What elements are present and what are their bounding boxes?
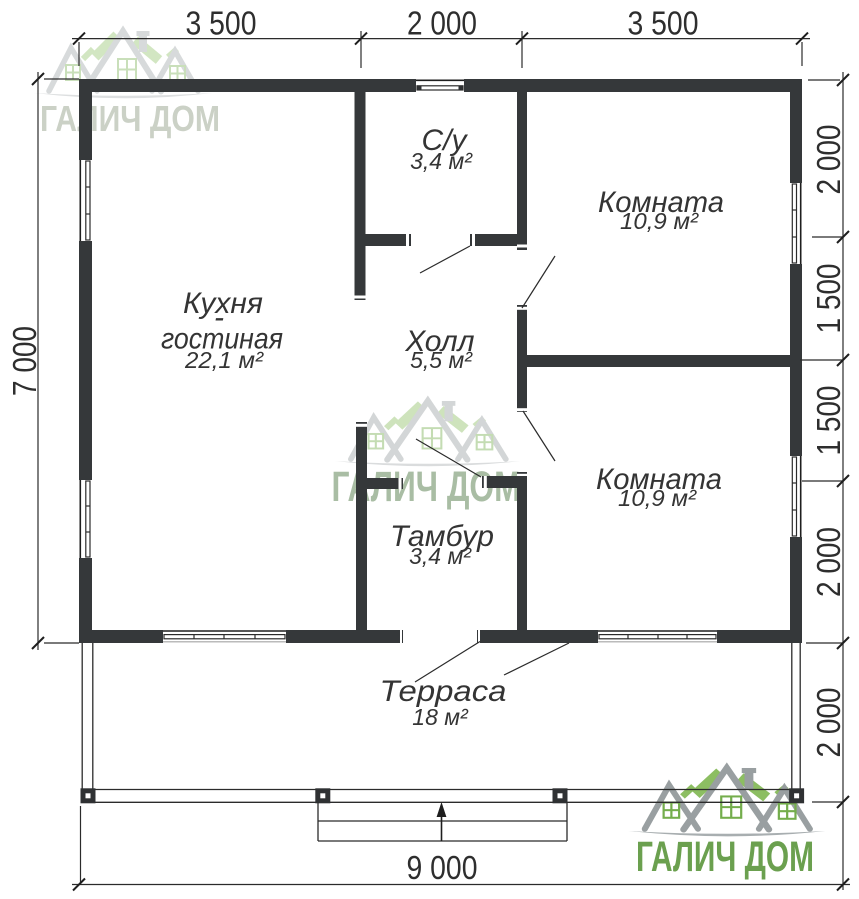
svg-text:3 500: 3 500 (628, 5, 699, 42)
svg-text:10,9 м²: 10,9 м² (620, 208, 699, 234)
svg-text:5,5 м²: 5,5 м² (410, 347, 473, 373)
svg-text:ГАЛИЧ ДОМ: ГАЛИЧ ДОМ (636, 834, 814, 881)
svg-text:18 м²: 18 м² (412, 704, 469, 730)
svg-text:9 000: 9 000 (407, 849, 478, 886)
svg-text:1 500: 1 500 (810, 386, 847, 456)
svg-text:ГАЛИЧ ДОМ: ГАЛИЧ ДОМ (40, 98, 220, 139)
svg-text:2 000: 2 000 (810, 688, 847, 758)
svg-text:3,4 м²: 3,4 м² (410, 148, 473, 174)
svg-text:2 000: 2 000 (810, 527, 847, 597)
svg-text:7 000: 7 000 (6, 326, 43, 396)
svg-text:2 000: 2 000 (407, 5, 477, 42)
svg-text:2 000: 2 000 (810, 125, 847, 195)
svg-text:10,9 м²: 10,9 м² (618, 485, 697, 511)
svg-text:3,4 м²: 3,4 м² (409, 543, 472, 569)
svg-text:3 500: 3 500 (186, 5, 257, 42)
svg-text:1 500: 1 500 (810, 264, 847, 334)
svg-text:22,1 м²: 22,1 м² (184, 347, 264, 373)
